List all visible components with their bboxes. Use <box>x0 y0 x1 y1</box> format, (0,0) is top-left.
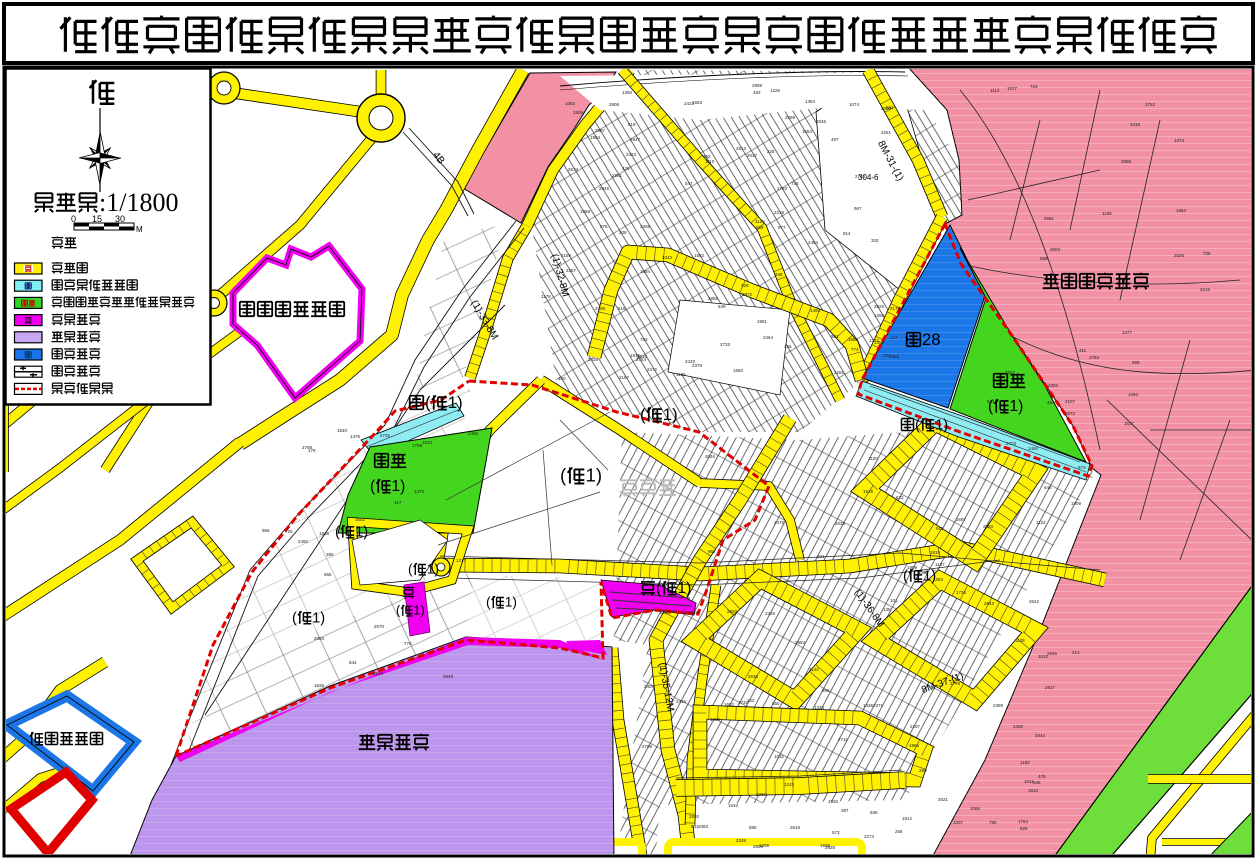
svg-text:2389: 2389 <box>993 703 1004 708</box>
svg-text:1042: 1042 <box>662 255 673 260</box>
svg-text:2219: 2219 <box>774 210 785 215</box>
svg-text:1): 1) <box>677 580 691 597</box>
svg-text:1128: 1128 <box>1015 638 1025 643</box>
svg-text:2287: 2287 <box>566 268 577 273</box>
svg-text:2046: 2046 <box>816 119 827 124</box>
svg-text:417: 417 <box>394 500 402 505</box>
svg-text:160: 160 <box>558 376 566 381</box>
svg-text:213: 213 <box>1072 650 1080 655</box>
svg-text:1637: 1637 <box>1124 421 1135 426</box>
svg-text:2107: 2107 <box>1065 399 1076 404</box>
svg-text:1909: 1909 <box>907 565 918 570</box>
svg-text:426: 426 <box>622 166 630 171</box>
svg-text:2229: 2229 <box>660 610 671 615</box>
svg-text:2366: 2366 <box>756 792 767 797</box>
svg-text:1540: 1540 <box>337 428 348 433</box>
svg-text:1): 1) <box>413 604 424 618</box>
svg-text:1068: 1068 <box>889 354 900 359</box>
svg-text:1981: 1981 <box>757 319 768 324</box>
svg-text:1): 1) <box>391 478 405 495</box>
svg-text:1129: 1129 <box>755 219 765 224</box>
svg-text:2764: 2764 <box>1089 355 1100 360</box>
svg-text:1384: 1384 <box>805 99 816 104</box>
svg-text:2965: 2965 <box>1121 159 1132 164</box>
svg-text:2808: 2808 <box>609 102 620 107</box>
svg-text:147: 147 <box>890 335 898 340</box>
svg-text:2083: 2083 <box>698 824 709 829</box>
svg-text:2887: 2887 <box>595 128 606 133</box>
svg-text:28: 28 <box>922 330 941 349</box>
svg-text:478: 478 <box>1038 774 1046 779</box>
svg-text:2752: 2752 <box>1145 102 1156 107</box>
svg-text:497: 497 <box>831 137 839 142</box>
svg-text:2883: 2883 <box>795 640 806 645</box>
svg-text:1912: 1912 <box>902 816 913 821</box>
svg-text:2438: 2438 <box>588 357 599 362</box>
svg-text:2325: 2325 <box>765 611 776 616</box>
svg-text:411: 411 <box>1079 348 1087 353</box>
svg-text:2697: 2697 <box>956 517 967 522</box>
svg-text:1965: 1965 <box>909 743 920 748</box>
svg-text:2187: 2187 <box>619 375 630 380</box>
svg-text:2393: 2393 <box>933 577 944 582</box>
svg-text:M: M <box>136 225 143 234</box>
svg-text:2309: 2309 <box>595 306 606 311</box>
svg-text:844: 844 <box>987 399 995 404</box>
svg-text:1007: 1007 <box>953 820 964 825</box>
svg-text:2464: 2464 <box>763 335 774 340</box>
svg-text:1532: 1532 <box>728 803 739 808</box>
svg-text:1493: 1493 <box>810 308 821 313</box>
svg-text:2648: 2648 <box>443 674 454 679</box>
svg-text:1935: 1935 <box>820 843 831 848</box>
svg-text:1392: 1392 <box>622 90 633 95</box>
svg-text:877: 877 <box>778 225 786 230</box>
svg-text:1): 1) <box>663 405 678 424</box>
svg-text:549: 549 <box>718 304 726 309</box>
svg-text:726: 726 <box>1203 251 1211 256</box>
svg-text:1178: 1178 <box>541 294 551 299</box>
svg-text:1508: 1508 <box>573 110 584 115</box>
svg-text:666: 666 <box>324 572 332 577</box>
svg-text:650: 650 <box>772 701 780 706</box>
svg-text:(: ( <box>408 562 413 577</box>
svg-text:1): 1) <box>935 417 948 433</box>
svg-text:888: 888 <box>749 825 757 830</box>
svg-text:2281: 2281 <box>834 370 845 375</box>
svg-text:1994: 1994 <box>590 135 601 140</box>
svg-text:332: 332 <box>871 238 879 243</box>
svg-text:519: 519 <box>628 122 636 127</box>
svg-text:501: 501 <box>831 334 839 339</box>
svg-text:2950: 2950 <box>983 524 994 529</box>
svg-text:975: 975 <box>600 224 608 229</box>
svg-text:2930: 2930 <box>689 814 700 819</box>
svg-text:2304: 2304 <box>1048 383 1059 388</box>
svg-text:1122: 1122 <box>1036 520 1046 525</box>
svg-text:1594: 1594 <box>640 269 651 274</box>
svg-text:646: 646 <box>1044 485 1052 490</box>
svg-text:1217: 1217 <box>456 558 467 563</box>
svg-text:2843: 2843 <box>984 601 995 606</box>
svg-text:1120: 1120 <box>868 456 878 461</box>
svg-text:454: 454 <box>1047 400 1055 405</box>
svg-text:2492: 2492 <box>298 539 309 544</box>
svg-text:122: 122 <box>747 698 755 703</box>
svg-text:2926: 2926 <box>753 844 764 849</box>
svg-text:1656: 1656 <box>848 337 859 342</box>
svg-text:2820: 2820 <box>727 609 738 614</box>
svg-text:2371: 2371 <box>873 703 884 708</box>
svg-text:622: 622 <box>896 495 904 500</box>
svg-text:(: ( <box>560 465 567 486</box>
svg-text:2972: 2972 <box>1065 411 1076 416</box>
svg-text:2406: 2406 <box>644 684 655 689</box>
svg-text::1/1800: :1/1800 <box>99 188 178 217</box>
svg-text:518: 518 <box>618 306 626 311</box>
svg-text:1): 1) <box>355 524 368 540</box>
svg-text:2732: 2732 <box>380 433 391 438</box>
svg-text:1112: 1112 <box>990 88 1000 93</box>
svg-text:621: 621 <box>817 554 825 559</box>
svg-text:280: 280 <box>919 768 927 773</box>
svg-text:2248: 2248 <box>736 838 747 843</box>
svg-text:2513: 2513 <box>736 146 747 151</box>
svg-text:1436: 1436 <box>863 703 874 708</box>
svg-text:1475: 1475 <box>414 489 425 494</box>
svg-text:1663: 1663 <box>692 100 703 105</box>
svg-text:2475: 2475 <box>774 520 785 525</box>
svg-text:774: 774 <box>851 347 859 352</box>
svg-text:1063: 1063 <box>565 101 576 106</box>
svg-text:(: ( <box>903 568 908 584</box>
svg-text:1666: 1666 <box>710 717 721 722</box>
svg-text:2851: 2851 <box>612 173 623 178</box>
svg-text:208: 208 <box>619 230 627 235</box>
svg-text:2274: 2274 <box>864 834 875 839</box>
svg-text:1243: 1243 <box>784 782 795 787</box>
svg-text:1): 1) <box>586 465 603 486</box>
svg-text:2778: 2778 <box>950 681 961 686</box>
svg-text:1937: 1937 <box>630 137 641 142</box>
svg-text:2711: 2711 <box>838 737 848 742</box>
svg-text:2526: 2526 <box>1174 253 1185 258</box>
svg-text:536: 536 <box>1033 780 1041 785</box>
svg-text:914: 914 <box>843 231 851 236</box>
svg-text:1613: 1613 <box>1028 788 1039 793</box>
svg-text:348: 348 <box>775 272 783 277</box>
svg-text:1654: 1654 <box>802 129 813 134</box>
svg-text:569: 569 <box>1132 360 1140 365</box>
svg-text:2636: 2636 <box>748 674 759 679</box>
svg-text:(: ( <box>335 524 340 540</box>
svg-text:1110: 1110 <box>705 159 715 164</box>
svg-text:483: 483 <box>753 90 761 95</box>
svg-text:2819: 2819 <box>930 550 941 555</box>
svg-text:2733: 2733 <box>720 342 731 347</box>
svg-text:2581: 2581 <box>1044 216 1055 221</box>
svg-text:2046: 2046 <box>705 454 716 459</box>
svg-text:2846: 2846 <box>1047 651 1058 656</box>
svg-text:139: 139 <box>883 607 891 612</box>
svg-text:1032: 1032 <box>774 754 785 759</box>
svg-text:263: 263 <box>658 582 666 587</box>
svg-text:2845: 2845 <box>599 186 610 191</box>
svg-text:1359: 1359 <box>874 340 885 345</box>
svg-text:228: 228 <box>767 149 775 154</box>
svg-text:967: 967 <box>854 206 862 211</box>
svg-text:1816: 1816 <box>319 531 330 536</box>
svg-text:1826: 1826 <box>314 683 325 688</box>
svg-text:1769: 1769 <box>412 443 423 448</box>
svg-text:1476: 1476 <box>350 434 361 439</box>
svg-text:(: ( <box>640 405 646 424</box>
svg-text:2418: 2418 <box>1130 122 1141 127</box>
svg-text:101: 101 <box>890 598 898 603</box>
svg-text:2819: 2819 <box>790 825 801 830</box>
svg-text:1460: 1460 <box>1028 446 1039 451</box>
svg-text:(: ( <box>292 610 297 626</box>
svg-text:1958: 1958 <box>580 209 591 214</box>
svg-text:1): 1) <box>1009 398 1023 415</box>
svg-text:1764: 1764 <box>1018 819 1029 824</box>
svg-text:1330: 1330 <box>1013 724 1024 729</box>
svg-text:1477: 1477 <box>1122 330 1133 335</box>
svg-text:1): 1) <box>448 393 463 412</box>
svg-text:1226: 1226 <box>770 88 781 93</box>
svg-text:2858: 2858 <box>708 296 719 301</box>
svg-text:2308: 2308 <box>640 224 651 229</box>
svg-text:2621: 2621 <box>938 797 949 802</box>
svg-text:795: 795 <box>989 820 997 825</box>
svg-text:1377: 1377 <box>1007 86 1018 91</box>
svg-text:1143: 1143 <box>809 667 819 672</box>
svg-text:1374: 1374 <box>1174 138 1185 143</box>
svg-text:1158: 1158 <box>1102 211 1112 216</box>
svg-text:2570: 2570 <box>374 624 385 629</box>
svg-text:362: 362 <box>703 154 711 159</box>
svg-text:1): 1) <box>505 595 517 610</box>
svg-text:1384: 1384 <box>688 610 699 615</box>
svg-text:1186: 1186 <box>676 372 686 377</box>
svg-text:2167: 2167 <box>910 724 921 729</box>
svg-text:725: 725 <box>285 529 293 534</box>
svg-text:2261: 2261 <box>881 130 892 135</box>
svg-text:753: 753 <box>640 337 648 342</box>
svg-text:966: 966 <box>262 528 270 533</box>
svg-text:2784: 2784 <box>855 174 866 179</box>
svg-text:355: 355 <box>326 552 334 557</box>
svg-text:1192: 1192 <box>1020 760 1030 765</box>
svg-text:1328: 1328 <box>814 705 825 710</box>
svg-text:776: 776 <box>404 641 412 646</box>
svg-text:936: 936 <box>870 810 878 815</box>
svg-text:915: 915 <box>936 526 944 531</box>
svg-text:547: 547 <box>685 181 693 186</box>
svg-text:(: ( <box>370 478 376 495</box>
svg-text:1909: 1909 <box>1071 501 1082 506</box>
svg-text:2817: 2817 <box>1045 685 1056 690</box>
svg-text:1062: 1062 <box>918 570 929 575</box>
svg-text:1533: 1533 <box>422 440 433 445</box>
svg-text:568: 568 <box>1040 256 1048 261</box>
svg-text:2674: 2674 <box>568 167 579 172</box>
svg-text:2494: 2494 <box>808 240 819 245</box>
svg-text:2972: 2972 <box>742 292 753 297</box>
svg-text:2458: 2458 <box>468 431 479 436</box>
svg-text:2179: 2179 <box>890 306 901 311</box>
svg-text:736: 736 <box>791 181 799 186</box>
svg-text:(: ( <box>425 393 431 412</box>
svg-text:2642: 2642 <box>1029 599 1040 604</box>
svg-text:1915: 1915 <box>630 353 641 358</box>
svg-text:256: 256 <box>895 829 903 834</box>
svg-text:2044: 2044 <box>1035 733 1046 738</box>
svg-text:844: 844 <box>349 660 357 665</box>
svg-text:973: 973 <box>1078 465 1086 470</box>
svg-text:2703: 2703 <box>1006 441 1017 446</box>
svg-text:1): 1) <box>312 610 325 626</box>
svg-text:825: 825 <box>1020 826 1028 831</box>
svg-text:2037: 2037 <box>747 153 758 158</box>
svg-text:2433: 2433 <box>685 359 696 364</box>
svg-text:2999: 2999 <box>752 83 763 88</box>
svg-text:861: 861 <box>886 105 894 110</box>
svg-text:2216: 2216 <box>1200 287 1211 292</box>
svg-text:2084: 2084 <box>314 636 325 641</box>
svg-text:1187: 1187 <box>935 562 945 567</box>
svg-text:1652: 1652 <box>724 702 735 707</box>
svg-text:2524: 2524 <box>373 671 384 676</box>
svg-text:962: 962 <box>708 549 716 554</box>
svg-text:1069: 1069 <box>970 806 981 811</box>
svg-text:(: ( <box>486 595 491 610</box>
svg-text:1926: 1926 <box>828 799 839 804</box>
svg-text:2769: 2769 <box>302 445 313 450</box>
svg-text:724: 724 <box>1030 84 1038 89</box>
svg-text:2159: 2159 <box>561 253 572 258</box>
svg-text:1652: 1652 <box>355 517 366 522</box>
svg-text:1736: 1736 <box>956 590 967 595</box>
svg-text:1074: 1074 <box>849 102 860 107</box>
svg-text:(: ( <box>915 417 920 433</box>
svg-text:329: 329 <box>741 283 749 288</box>
svg-text:1094: 1094 <box>1128 392 1139 397</box>
svg-text:1783: 1783 <box>777 186 788 191</box>
svg-text:2003: 2003 <box>1050 247 1061 252</box>
svg-text:1): 1) <box>427 562 439 577</box>
svg-text:558: 558 <box>756 225 764 230</box>
svg-text:896: 896 <box>822 688 830 693</box>
svg-text:2902: 2902 <box>1005 370 1016 375</box>
svg-text:2925: 2925 <box>874 304 885 309</box>
svg-text:1854: 1854 <box>1176 208 1187 213</box>
svg-text:573: 573 <box>832 830 840 835</box>
svg-text:2415: 2415 <box>676 699 687 704</box>
svg-text:1268: 1268 <box>874 313 885 318</box>
svg-text:2472: 2472 <box>647 367 658 372</box>
svg-text:1650: 1650 <box>733 368 744 373</box>
svg-text:2038: 2038 <box>835 521 846 526</box>
svg-text:2709: 2709 <box>642 744 653 749</box>
svg-text:2299: 2299 <box>785 115 796 120</box>
svg-text:2423: 2423 <box>626 152 637 157</box>
svg-text:1529: 1529 <box>863 489 874 494</box>
svg-text:397: 397 <box>841 808 849 813</box>
svg-text:1582: 1582 <box>694 253 705 258</box>
svg-text:456: 456 <box>784 344 792 349</box>
